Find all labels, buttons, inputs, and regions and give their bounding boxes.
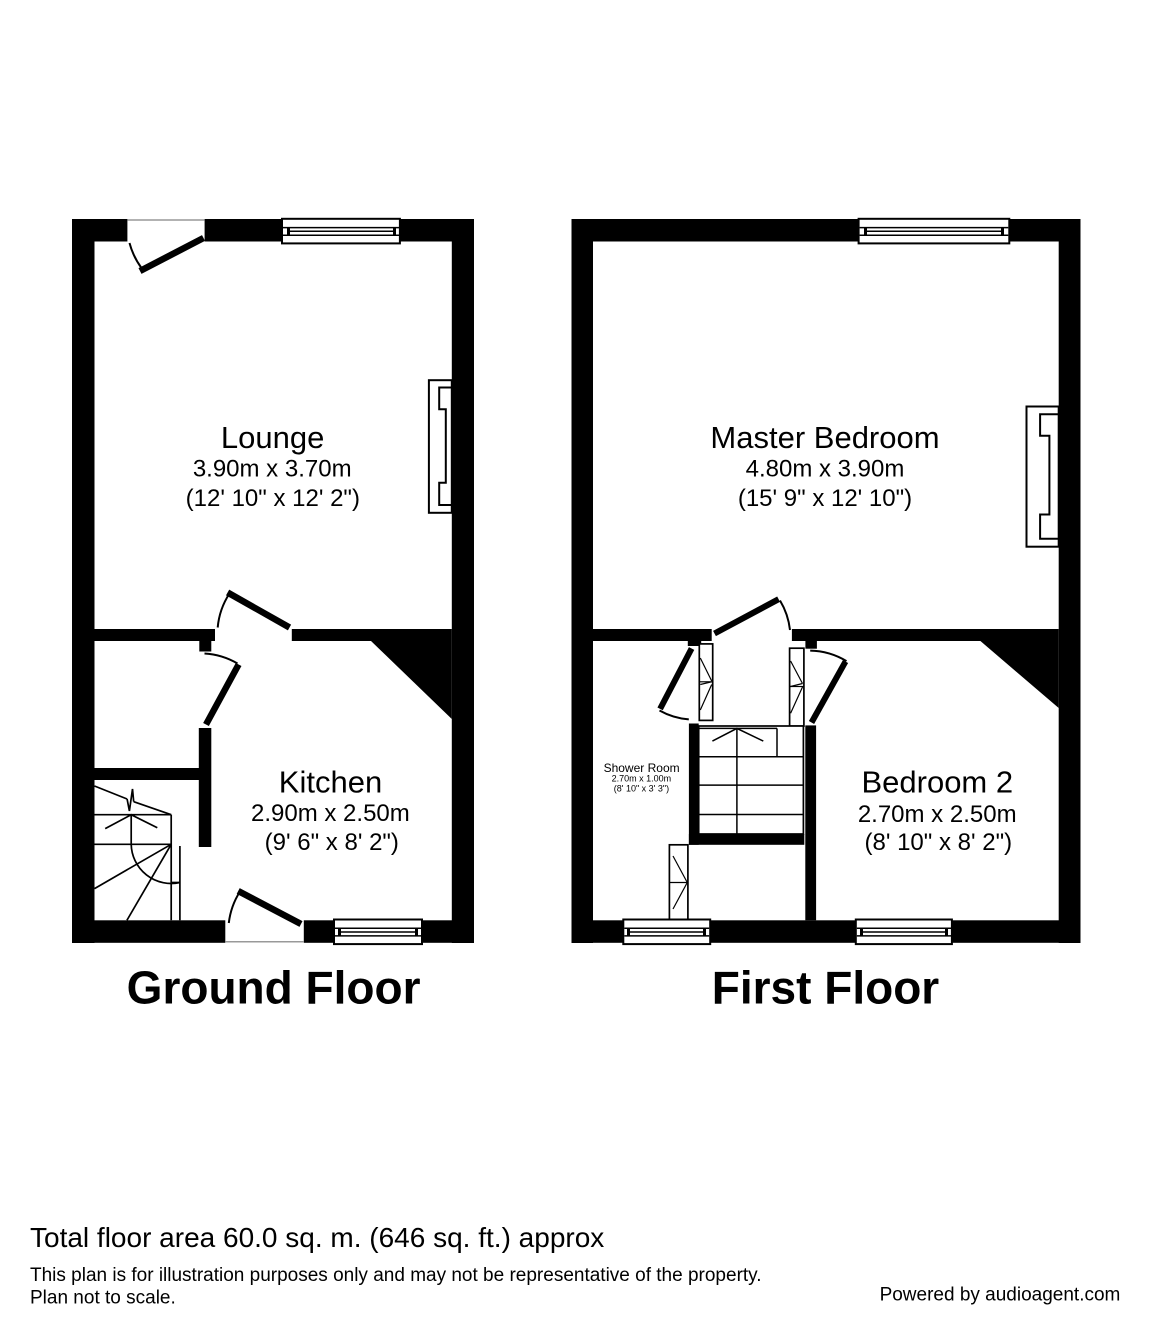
svg-text:Ground Floor: Ground Floor	[127, 962, 421, 1014]
svg-text:2.70m x 2.50m: 2.70m x 2.50m	[858, 801, 1017, 828]
svg-text:Kitchen: Kitchen	[279, 765, 382, 800]
svg-text:(8' 10" x 8' 2"): (8' 10" x 8' 2")	[864, 829, 1012, 856]
svg-text:First Floor: First Floor	[712, 962, 940, 1014]
svg-text:(9' 6" x 8' 2"): (9' 6" x 8' 2")	[265, 829, 399, 856]
svg-text:(15' 9" x 12' 10"): (15' 9" x 12' 10")	[738, 485, 912, 512]
svg-text:(12' 10" x 12' 2"): (12' 10" x 12' 2")	[186, 485, 360, 512]
svg-text:Powered by audioagent.com: Powered by audioagent.com	[880, 1284, 1121, 1305]
svg-text:This plan is for illustration: This plan is for illustration purposes o…	[30, 1265, 762, 1286]
svg-text:Bedroom 2: Bedroom 2	[861, 765, 1013, 800]
svg-text:4.80m x 3.90m: 4.80m x 3.90m	[746, 456, 905, 483]
svg-text:Total floor area 60.0 sq. m. (: Total floor area 60.0 sq. m. (646 sq. ft…	[30, 1222, 604, 1253]
svg-text:Plan not to scale.: Plan not to scale.	[30, 1288, 176, 1309]
svg-text:2.90m x 2.50m: 2.90m x 2.50m	[251, 800, 410, 827]
svg-text:Lounge: Lounge	[221, 420, 324, 455]
svg-text:(8' 10" x 3' 3"): (8' 10" x 3' 3")	[614, 784, 669, 794]
svg-text:3.90m x 3.70m: 3.90m x 3.70m	[193, 456, 352, 483]
svg-text:Master Bedroom: Master Bedroom	[710, 420, 939, 455]
svg-text:2.70m x 1.00m: 2.70m x 1.00m	[612, 774, 672, 784]
